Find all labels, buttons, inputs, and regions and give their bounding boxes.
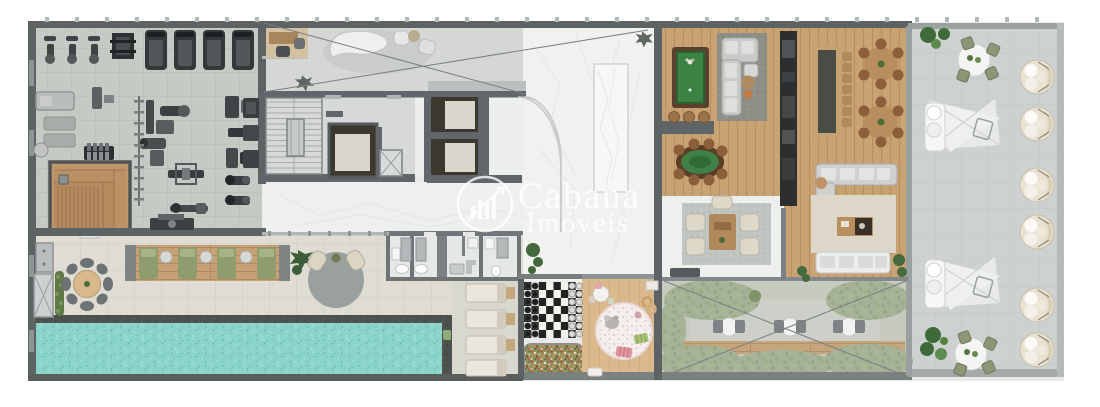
svg-text:Imóveis: Imóveis xyxy=(526,208,630,239)
